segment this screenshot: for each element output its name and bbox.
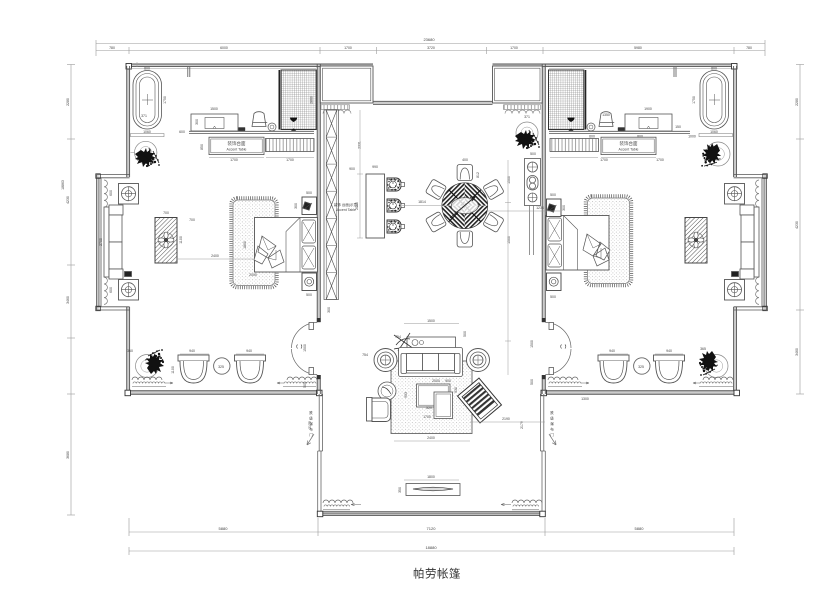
svg-text:150: 150 <box>675 125 681 129</box>
svg-text:500: 500 <box>463 331 467 337</box>
svg-text:5880: 5880 <box>219 526 229 531</box>
svg-text:2860: 2860 <box>310 96 314 104</box>
svg-text:371: 371 <box>524 115 530 119</box>
svg-text:5980: 5980 <box>634 46 642 50</box>
svg-text:300: 300 <box>327 307 331 313</box>
svg-text:1800: 1800 <box>243 241 247 249</box>
svg-text:754: 754 <box>362 353 368 357</box>
svg-text:900: 900 <box>445 379 451 383</box>
svg-text:4230: 4230 <box>66 196 70 204</box>
svg-text:1700: 1700 <box>510 46 518 50</box>
svg-text:900: 900 <box>349 167 355 171</box>
svg-text:1500: 1500 <box>303 344 307 352</box>
svg-text:4230: 4230 <box>795 221 799 229</box>
svg-text:2000: 2000 <box>355 202 359 210</box>
svg-text:2000: 2000 <box>432 379 440 383</box>
svg-text:2179: 2179 <box>308 421 312 429</box>
svg-text:1300: 1300 <box>581 397 589 401</box>
svg-text:500: 500 <box>303 382 307 388</box>
svg-text:1700: 1700 <box>423 415 431 419</box>
svg-text:布: 布 <box>550 427 554 432</box>
svg-text:2700: 2700 <box>99 238 103 246</box>
svg-text:2280: 2280 <box>66 98 70 106</box>
svg-text:级: 级 <box>550 416 554 421</box>
svg-text:跌: 跌 <box>309 410 313 415</box>
svg-text:371: 371 <box>141 114 147 118</box>
svg-text:2400: 2400 <box>427 436 435 440</box>
svg-text:门: 门 <box>550 432 554 437</box>
svg-text:3460: 3460 <box>66 296 70 304</box>
svg-text:350: 350 <box>398 487 402 493</box>
svg-text:780: 780 <box>746 46 752 50</box>
svg-text:500: 500 <box>530 152 536 156</box>
svg-text:700: 700 <box>189 218 195 222</box>
svg-text:500: 500 <box>306 293 312 297</box>
svg-text:940: 940 <box>666 349 672 353</box>
svg-text:装饰台面: 装饰台面 <box>620 140 638 147</box>
svg-text:1500: 1500 <box>210 107 218 111</box>
svg-text:1500: 1500 <box>530 340 534 348</box>
svg-text:500: 500 <box>550 295 556 299</box>
svg-text:3680: 3680 <box>66 451 70 459</box>
svg-text:520: 520 <box>426 406 432 410</box>
svg-text:1700: 1700 <box>656 158 664 162</box>
svg-text:800: 800 <box>711 67 717 71</box>
svg-text:1000: 1000 <box>688 135 696 139</box>
svg-text:1060: 1060 <box>143 130 151 134</box>
svg-text:3460: 3460 <box>795 348 799 356</box>
svg-text:5880: 5880 <box>635 526 645 531</box>
svg-text:600: 600 <box>589 135 595 139</box>
svg-text:2400: 2400 <box>211 254 219 258</box>
svg-text:1500: 1500 <box>427 319 435 323</box>
svg-text:Accent Table: Accent Table <box>619 148 639 152</box>
svg-text:1700: 1700 <box>230 158 238 162</box>
svg-text:600: 600 <box>109 190 113 196</box>
svg-text:500: 500 <box>530 379 534 385</box>
svg-text:300: 300 <box>294 203 298 209</box>
svg-text:930: 930 <box>454 387 458 393</box>
svg-text:780: 780 <box>109 46 115 50</box>
svg-text:500: 500 <box>306 191 312 195</box>
svg-text:1700: 1700 <box>344 46 352 50</box>
svg-text:1060: 1060 <box>710 130 718 134</box>
svg-text:365: 365 <box>700 347 706 351</box>
svg-text:1700: 1700 <box>286 158 294 162</box>
svg-text:2331: 2331 <box>358 141 362 149</box>
svg-text:1750: 1750 <box>163 96 167 104</box>
svg-text:Accent Table: Accent Table <box>336 208 356 212</box>
svg-text:360: 360 <box>127 349 133 353</box>
svg-text:装饰台面: 装饰台面 <box>228 140 246 147</box>
svg-text:1234: 1234 <box>536 206 544 210</box>
svg-text:跌: 跌 <box>550 410 554 415</box>
svg-text:800: 800 <box>637 135 643 139</box>
svg-text:帕劳帐篷: 帕劳帐篷 <box>413 567 461 581</box>
svg-text:1814: 1814 <box>418 200 426 204</box>
svg-text:1100: 1100 <box>171 366 175 374</box>
svg-text:1750: 1750 <box>692 96 696 104</box>
svg-text:3720: 3720 <box>427 46 435 50</box>
svg-text:325: 325 <box>638 365 644 369</box>
svg-text:940: 940 <box>189 349 195 353</box>
svg-text:6000: 6000 <box>220 46 228 50</box>
svg-text:23680: 23680 <box>423 37 435 42</box>
svg-text:600: 600 <box>109 287 113 293</box>
svg-text:1350: 1350 <box>602 113 610 117</box>
svg-text:812: 812 <box>476 172 480 178</box>
svg-text:850: 850 <box>200 144 204 150</box>
svg-text:1800: 1800 <box>427 475 435 479</box>
svg-text:754: 754 <box>395 335 401 339</box>
svg-text:瀑: 瀑 <box>550 421 554 426</box>
svg-text:1900: 1900 <box>644 107 652 111</box>
svg-text:300: 300 <box>195 119 199 125</box>
svg-text:940: 940 <box>609 349 615 353</box>
svg-text:Accent Table: Accent Table <box>227 148 247 152</box>
svg-text:1500: 1500 <box>507 236 511 244</box>
svg-text:18863: 18863 <box>61 180 65 190</box>
svg-text:990: 990 <box>372 165 378 169</box>
svg-text:500: 500 <box>550 193 556 197</box>
svg-text:18880: 18880 <box>425 545 437 550</box>
svg-text:700: 700 <box>163 211 169 215</box>
svg-text:2190: 2190 <box>502 417 510 421</box>
svg-text:2000: 2000 <box>249 273 257 277</box>
svg-text:400: 400 <box>462 158 468 162</box>
svg-text:940: 940 <box>246 349 252 353</box>
svg-text:600: 600 <box>179 130 185 134</box>
svg-text:325: 325 <box>218 365 224 369</box>
svg-text:2280: 2280 <box>795 98 799 106</box>
svg-text:300: 300 <box>562 205 566 211</box>
svg-text:933: 933 <box>404 392 408 398</box>
svg-text:800: 800 <box>144 67 150 71</box>
svg-text:1100: 1100 <box>179 236 183 244</box>
svg-text:1700: 1700 <box>600 158 608 162</box>
svg-text:级: 级 <box>309 416 313 421</box>
svg-text:1500: 1500 <box>507 176 511 184</box>
svg-text:7120: 7120 <box>427 526 437 531</box>
